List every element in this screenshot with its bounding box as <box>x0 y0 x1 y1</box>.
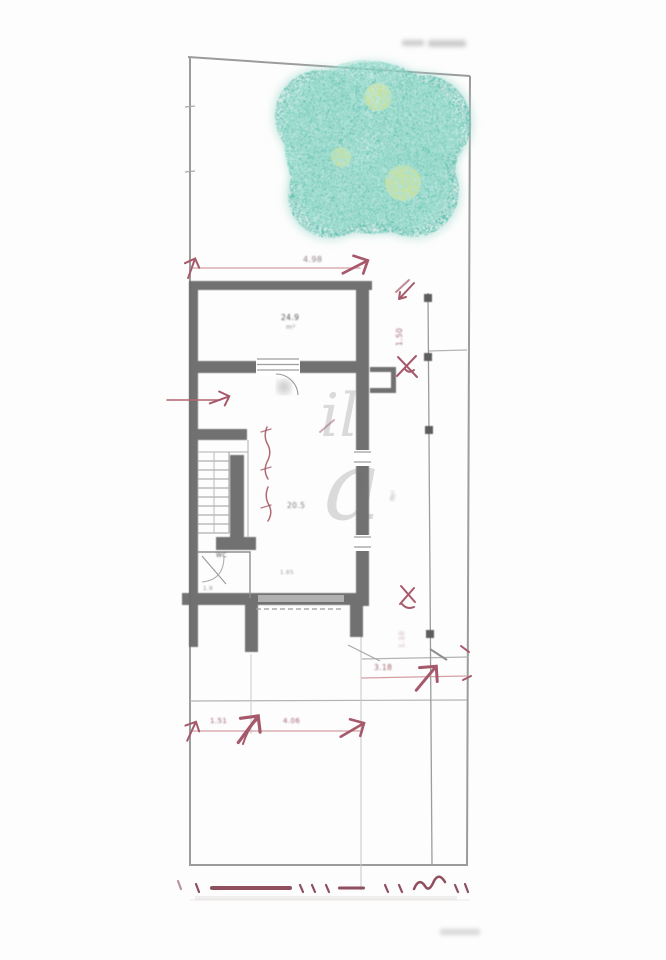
wc-label: WC <box>216 553 227 559</box>
upper-room-area-label: 24.9 <box>281 314 299 322</box>
dim-bottom-mid: 4.06 <box>283 718 300 725</box>
bottom-dimension-chain <box>178 877 468 900</box>
tree <box>272 60 474 241</box>
upper-room-unit-label: m² <box>286 324 296 331</box>
watermark-part-2: a <box>324 438 381 534</box>
top-right-note-smudge-2 <box>428 40 466 47</box>
hall-note-label: 1.85 <box>280 571 294 577</box>
entry-door <box>276 374 298 395</box>
dim-front-depth: 3.18 <box>374 664 392 672</box>
dimension-lines <box>167 268 466 731</box>
main-room-area-label: 20.5 <box>287 502 305 510</box>
bottom-right-note-smudge <box>440 929 480 935</box>
dim-top-width: 4.98 <box>303 256 322 264</box>
scanned-plan-page: il a 4.98 1.50 1.10 3.18 1.51 4.06 24.9 … <box>0 0 666 960</box>
fence-line <box>428 293 432 866</box>
top-right-note-smudge <box>402 40 424 46</box>
red-annotations <box>167 255 471 744</box>
wc-area-label: 1.9 <box>203 587 213 593</box>
dim-right-lower: 1.10 <box>399 631 406 648</box>
dim-right-upper: 1.50 <box>396 328 404 346</box>
dim-bottom-left: 1.51 <box>210 718 227 725</box>
